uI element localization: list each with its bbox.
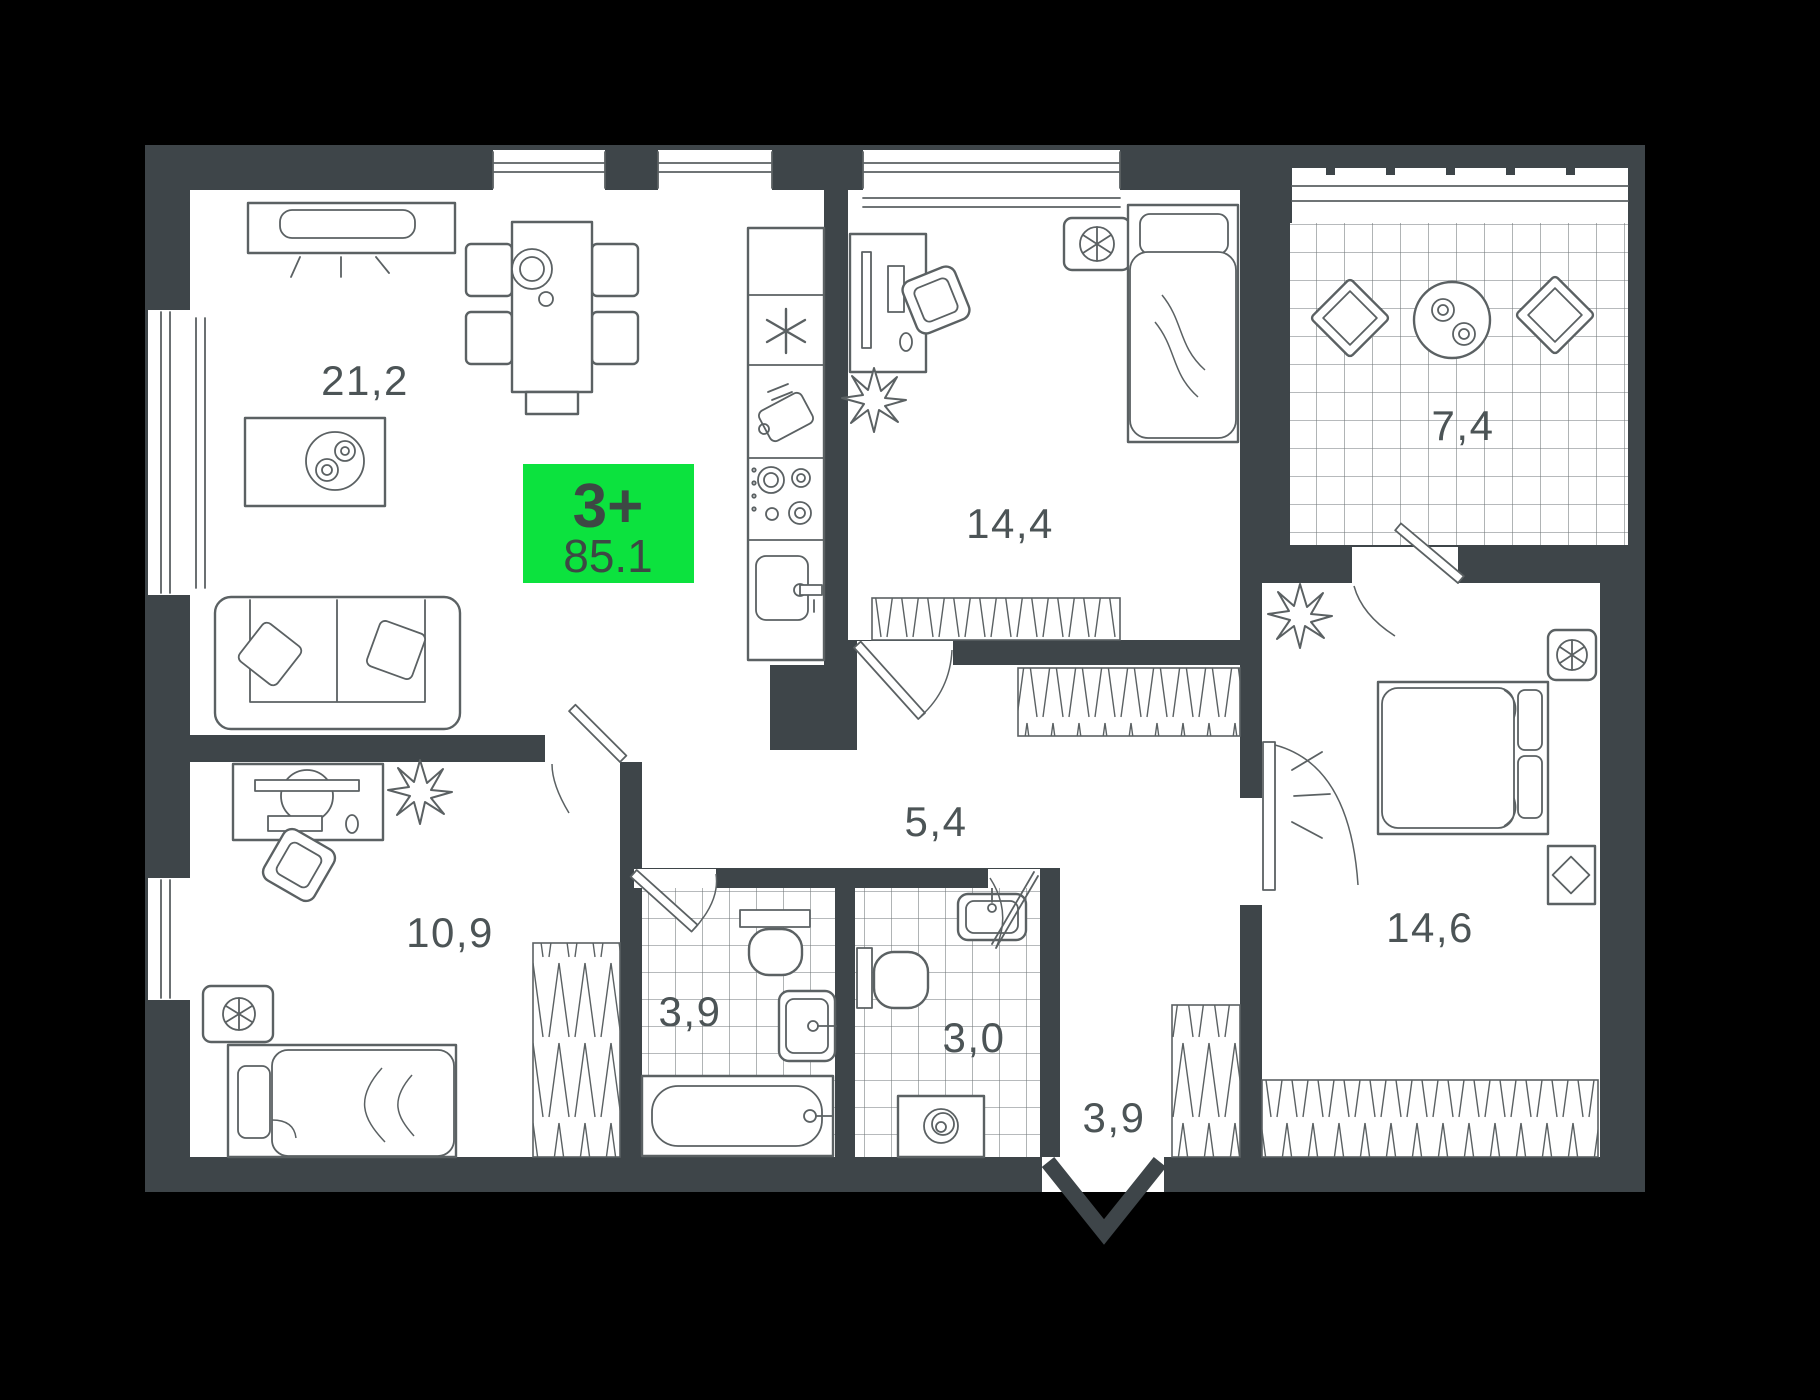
window: [863, 150, 1120, 207]
coffee-table: [245, 418, 385, 506]
room-label-kidsroom: 10,9: [406, 909, 494, 956]
room-wc: 3,0: [855, 884, 1040, 1157]
room-bedroom: 14,6: [1262, 583, 1600, 1157]
room-label-bathroom: 3,9: [659, 988, 722, 1035]
kitchen-unit: [748, 228, 824, 660]
wardrobe: [1172, 1005, 1240, 1157]
sofa: [215, 597, 460, 729]
rug: [872, 598, 1120, 640]
wardrobe: [533, 943, 620, 1157]
toilet-icon: [740, 910, 810, 975]
room-bedroom2: 14,4: [842, 150, 1240, 640]
balcony-table: [1414, 282, 1490, 358]
desk: [233, 764, 383, 840]
ac-unit-icon: [203, 986, 273, 1042]
bed-single: [1128, 205, 1238, 442]
room-label-entrance: 3,9: [1083, 1094, 1146, 1141]
window: [658, 150, 772, 190]
bed-double: [1378, 682, 1548, 834]
room-balcony: 7,4: [1290, 166, 1628, 545]
ac-unit-icon: [1548, 630, 1596, 680]
room-kidsroom: 10,9: [148, 760, 620, 1157]
room-label-balcony: 7,4: [1432, 402, 1495, 449]
room-label-wc: 3,0: [943, 1014, 1006, 1061]
washing-machine-icon: [898, 1096, 984, 1157]
window: [148, 878, 190, 1000]
window: [148, 310, 205, 595]
unit-area: 85.1: [563, 530, 653, 582]
room-label-living: 21,2: [321, 357, 409, 404]
floor-plan-page: 21,2: [0, 0, 1820, 1400]
room-label-hallway: 5,4: [905, 798, 968, 845]
floor-plan: 21,2: [0, 0, 1820, 1400]
window: [493, 150, 605, 190]
room-hallway: 5,4: [545, 665, 1240, 868]
ac-unit-icon: [1064, 218, 1130, 270]
room-bathroom: 3,9: [642, 888, 836, 1157]
unit-badge: 3+ 85.1: [523, 464, 694, 583]
wardrobe: [1018, 668, 1240, 736]
balcony-glazing: [1292, 166, 1628, 223]
wardrobe: [1262, 1080, 1598, 1157]
room-label-bedroom2: 14,4: [966, 500, 1054, 547]
bathtub-icon: [642, 1076, 833, 1156]
toilet-icon: [857, 948, 928, 1008]
sink-icon: [779, 991, 836, 1061]
nightstand: [1548, 846, 1595, 904]
room-label-bedroom: 14,6: [1386, 904, 1474, 951]
bed-single: [228, 1045, 456, 1157]
room-living: 21,2: [148, 150, 824, 735]
